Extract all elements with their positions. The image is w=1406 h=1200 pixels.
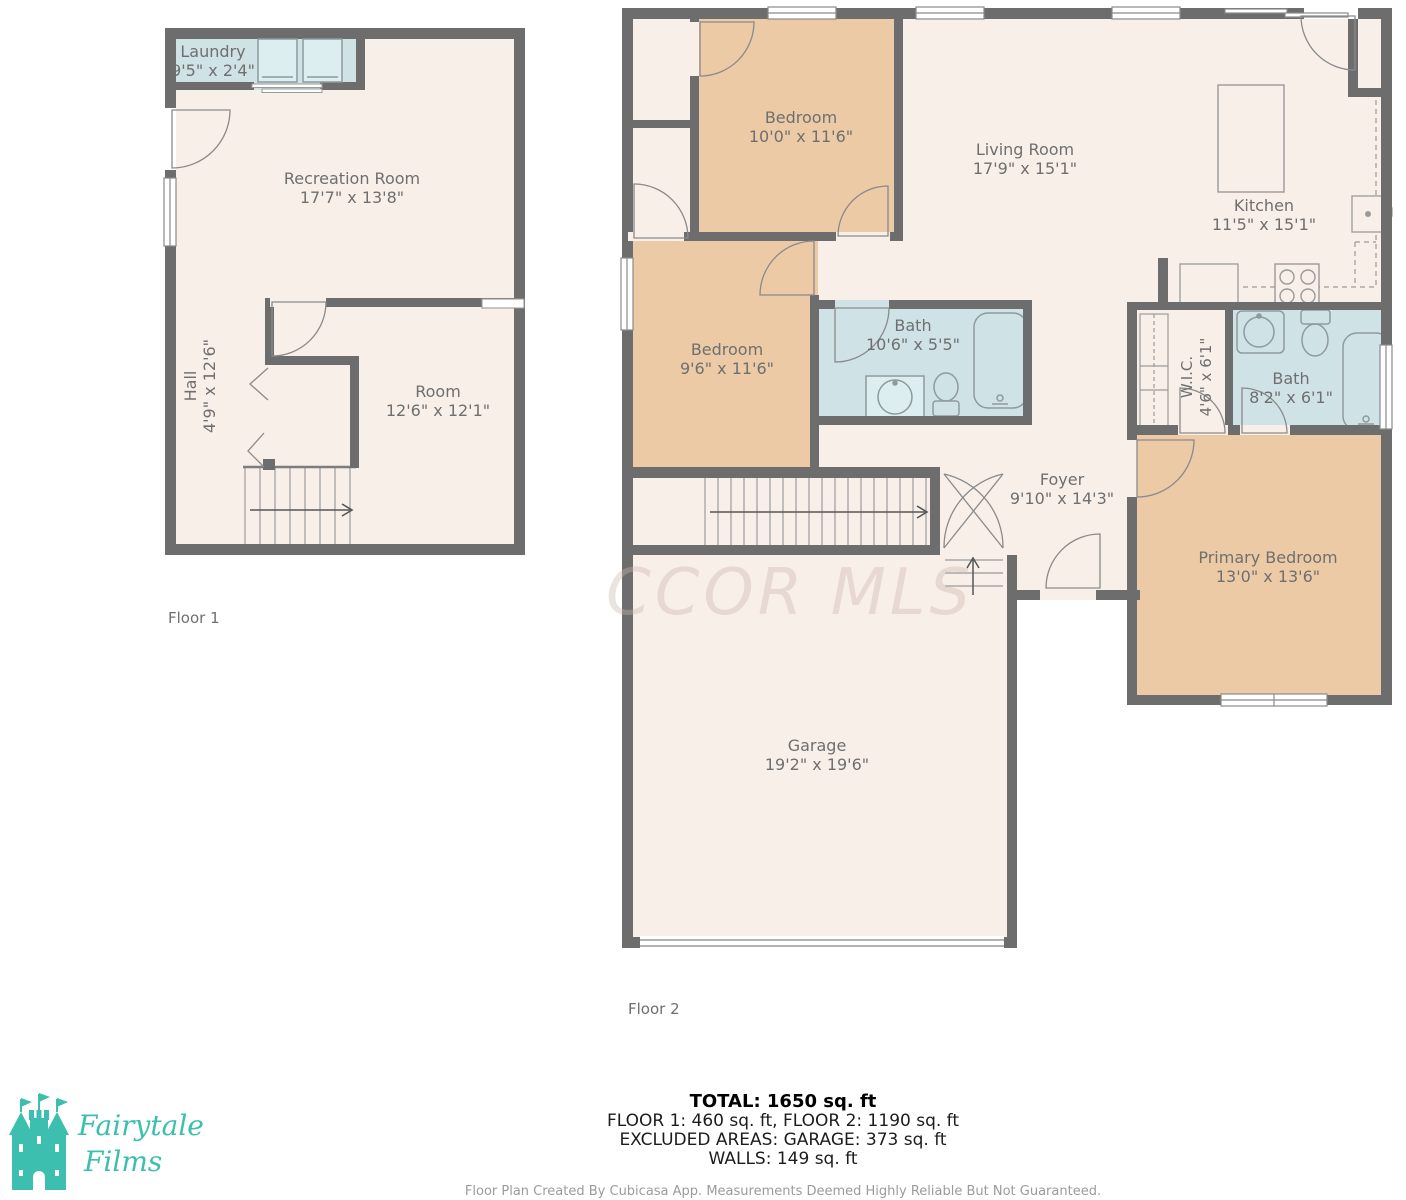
floor2-label: Floor 2 (628, 1000, 680, 1018)
room-dims: 17'7" x 13'8" (252, 188, 452, 207)
floor1-label: Floor 1 (168, 609, 220, 627)
room-label-primary: Primary Bedroom 13'0" x 13'6" (1118, 548, 1406, 586)
room-dims: 4'9" x 12'6" (200, 311, 219, 461)
bath2-fill (1233, 302, 1392, 433)
logo-line2: Films (84, 1144, 204, 1180)
logo-line1: Fairytale (78, 1108, 204, 1144)
room-dims: 12'6" x 12'1" (338, 401, 538, 420)
room-dims: 10'0" x 11'6" (701, 127, 901, 146)
room-label-hall: Hall 4'9" x 12'6" (181, 311, 219, 461)
room-label-kitchen: Kitchen 11'5" x 15'1" (1164, 196, 1364, 234)
total-area: TOTAL: 1650 sq. ft (268, 1092, 1298, 1111)
room-name: Laundry (153, 42, 273, 61)
excluded-areas: EXCLUDED AREAS: GARAGE: 373 sq. ft (268, 1131, 1298, 1150)
wall-niche (482, 299, 524, 308)
room-name: Primary Bedroom (1118, 548, 1406, 567)
room-dims: 11'5" x 15'1" (1164, 215, 1364, 234)
room-label-bedroom2: Bedroom 9'6" x 11'6" (627, 340, 827, 378)
room-name: Garage (717, 736, 917, 755)
floor1-plan (164, 28, 525, 555)
room-dims: 10'6" x 5'5" (813, 335, 1013, 354)
room-dims: 9'5" x 2'4" (153, 61, 273, 80)
room-label-living: Living Room 17'9" x 15'1" (925, 140, 1125, 178)
room-dims: 8'2" x 6'1" (1191, 388, 1391, 407)
stove-icon (1275, 264, 1319, 308)
room-name: Foyer (962, 470, 1162, 489)
entry-door-opening (164, 108, 176, 170)
room-label-bedroom1: Bedroom 10'0" x 11'6" (701, 108, 901, 146)
dryer (303, 39, 342, 82)
castle-logo-icon (9, 1093, 69, 1190)
logo-wordmark: Fairytale Films (78, 1108, 204, 1180)
room-dims: 19'2" x 19'6" (717, 755, 917, 774)
sliding-door-panel (252, 84, 322, 88)
room-name: Bedroom (701, 108, 901, 127)
room-label-room: Room 12'6" x 12'1" (338, 382, 538, 420)
kitchen-island (1218, 85, 1284, 192)
sliding-door-panel (262, 89, 322, 93)
room-label-bath2: Bath 8'2" x 6'1" (1191, 369, 1391, 407)
room-name: Room (338, 382, 538, 401)
mls-watermark: CCOR MLS (606, 556, 974, 630)
room-name: Living Room (925, 140, 1125, 159)
room-label-bath1: Bath 10'6" x 5'5" (813, 316, 1013, 354)
floor-plan-page: CCOR MLS Laundry 9'5" x 2'4" Recreation … (0, 0, 1406, 1200)
floor1-footprint (165, 28, 525, 555)
room-name: Hall (181, 311, 200, 461)
room-name: Bedroom (627, 340, 827, 359)
room-dims: 13'0" x 13'6" (1118, 567, 1406, 586)
room-dims: 9'6" x 11'6" (627, 359, 827, 378)
room-name: Bath (1191, 369, 1391, 388)
kitchen-counter (1180, 264, 1238, 303)
room-dims: 17'9" x 15'1" (925, 159, 1125, 178)
faucet-icon (1365, 211, 1371, 217)
area-summary: TOTAL: 1650 sq. ft FLOOR 1: 460 sq. ft, … (268, 1092, 1298, 1169)
room-dims: 9'10" x 14'3" (962, 489, 1162, 508)
sliding-door-panel (1225, 9, 1287, 13)
walls-area: WALLS: 149 sq. ft (268, 1150, 1298, 1169)
garage-door (640, 936, 1004, 949)
floor-areas: FLOOR 1: 460 sq. ft, FLOOR 2: 1190 sq. f… (268, 1112, 1298, 1131)
room-name: Bath (813, 316, 1013, 335)
room-label-recreation: Recreation Room 17'7" x 13'8" (252, 169, 452, 207)
room-label-laundry: Laundry 9'5" x 2'4" (153, 42, 273, 80)
room-name: Kitchen (1164, 196, 1364, 215)
room-label-foyer: Foyer 9'10" x 14'3" (962, 470, 1162, 508)
disclaimer-text: Floor Plan Created By Cubicasa App. Meas… (268, 1184, 1298, 1199)
room-name: Recreation Room (252, 169, 452, 188)
room-label-garage: Garage 19'2" x 19'6" (717, 736, 917, 774)
